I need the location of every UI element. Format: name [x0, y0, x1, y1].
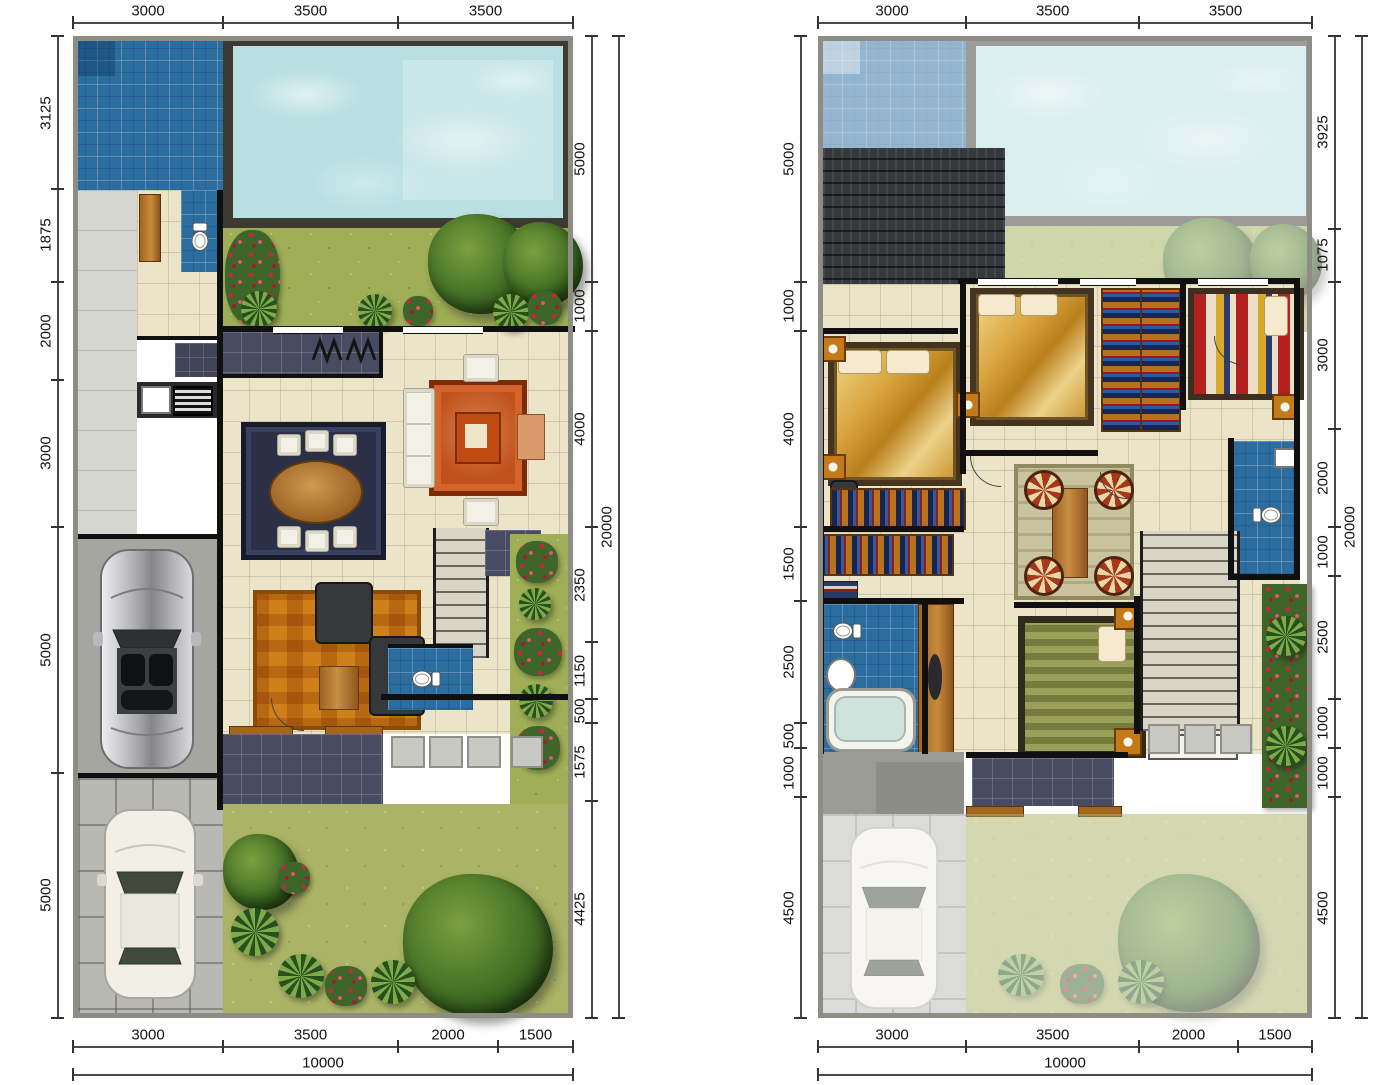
dim-line-ground-floor-plan-bottom-outer — [73, 1074, 573, 1076]
dimension-label: 500 — [782, 723, 797, 748]
dimension-label: 1150 — [573, 654, 588, 686]
dim-tick — [51, 281, 64, 283]
dimension-label: 2000 — [39, 314, 54, 347]
dim-tick — [1237, 1040, 1239, 1053]
dim-tick — [1328, 281, 1341, 283]
dim-tick — [1328, 35, 1341, 37]
dim-tick — [497, 1040, 499, 1053]
dim-tick — [1355, 35, 1368, 37]
dim-tick — [51, 188, 64, 190]
dimension-label: 3000 — [131, 1028, 164, 1043]
dim-tick — [1328, 526, 1341, 528]
dim-tick — [72, 16, 74, 29]
dim-tick — [794, 35, 807, 37]
dimension-label: 3125 — [39, 96, 54, 129]
dim-tick — [51, 35, 64, 37]
dimension-layer: 3000350035003125187520003000500050005000… — [0, 0, 1400, 1085]
dimension-label: 3000 — [875, 4, 908, 19]
dimension-label: 5000 — [39, 633, 54, 666]
dim-tick — [817, 1040, 819, 1053]
dimension-label: 4425 — [573, 893, 588, 926]
dimension-label: 20000 — [1343, 506, 1358, 548]
dim-tick — [817, 16, 819, 29]
dim-tick — [222, 16, 224, 29]
dim-tick — [585, 526, 598, 528]
dimension-label: 3500 — [1036, 4, 1069, 19]
dimension-label: 500 — [573, 699, 588, 724]
dim-tick — [585, 1017, 598, 1019]
dimension-label: 2000 — [431, 1028, 464, 1043]
dimension-label: 4500 — [1316, 891, 1331, 924]
dim-tick — [585, 641, 598, 643]
dim-tick — [1328, 747, 1341, 749]
dim-tick — [222, 1040, 224, 1053]
dim-tick — [397, 1040, 399, 1053]
dimension-label: 1075 — [1316, 238, 1331, 271]
dim-tick — [51, 1017, 64, 1019]
dim-line-upper-floor-plan-top — [818, 22, 1312, 24]
dimension-label: 3000 — [39, 437, 54, 470]
dimension-label: 5000 — [573, 142, 588, 175]
dim-tick — [965, 1040, 967, 1053]
dimension-label: 1500 — [1258, 1028, 1291, 1043]
dimension-label: 2500 — [782, 645, 797, 678]
dim-line-ground-floor-plan-right-outer — [618, 36, 620, 1018]
dimension-label: 3500 — [469, 4, 502, 19]
dimension-label: 3500 — [294, 1028, 327, 1043]
dim-tick — [612, 35, 625, 37]
dimension-label: 4000 — [573, 412, 588, 445]
dimension-label: 20000 — [600, 506, 615, 548]
dim-tick — [51, 772, 64, 774]
dim-tick — [1328, 428, 1341, 430]
dim-tick — [1138, 1040, 1140, 1053]
dimension-label: 1000 — [782, 756, 797, 789]
dim-tick — [794, 600, 807, 602]
dim-tick — [794, 526, 807, 528]
dim-tick — [572, 1040, 574, 1053]
dim-tick — [1328, 796, 1341, 798]
dim-tick — [572, 16, 574, 29]
dimension-label: 1000 — [573, 289, 588, 322]
dimension-label: 3000 — [131, 4, 164, 19]
dim-tick — [51, 379, 64, 381]
dim-line-upper-floor-plan-right-outer — [1361, 36, 1363, 1018]
dimension-label: 1875 — [39, 219, 54, 252]
dimension-label: 10000 — [1044, 1056, 1086, 1071]
dim-tick — [585, 330, 598, 332]
dimension-label: 1500 — [519, 1028, 552, 1043]
dim-tick — [585, 35, 598, 37]
dimension-label: 1500 — [782, 547, 797, 580]
dim-tick — [1311, 1040, 1313, 1053]
dim-tick — [965, 16, 967, 29]
dimension-label: 5000 — [782, 142, 797, 175]
dim-tick — [1328, 698, 1341, 700]
dim-tick — [72, 1068, 74, 1081]
dimension-label: 1000 — [782, 289, 797, 322]
dim-tick — [585, 281, 598, 283]
dimension-label: 1000 — [1316, 707, 1331, 740]
dim-tick — [51, 526, 64, 528]
dim-tick — [1311, 1068, 1313, 1081]
dimension-label: 4500 — [782, 891, 797, 924]
dimension-label: 3500 — [1209, 4, 1242, 19]
dimension-label: 2350 — [573, 568, 588, 601]
dim-line-upper-floor-plan-bottom-outer — [818, 1074, 1312, 1076]
dim-line-ground-floor-plan-top — [73, 22, 573, 24]
dimension-label: 3500 — [294, 4, 327, 19]
dim-tick — [397, 16, 399, 29]
dim-tick — [1328, 1017, 1341, 1019]
dimension-label: 5000 — [39, 879, 54, 912]
dimension-label: 3500 — [1036, 1028, 1069, 1043]
dimension-label: 2500 — [1316, 621, 1331, 654]
dim-tick — [585, 800, 598, 802]
dimension-label: 2000 — [1172, 1028, 1205, 1043]
dim-tick — [612, 1017, 625, 1019]
dim-tick — [794, 281, 807, 283]
floor-plan-sheet: 3000350035003125187520003000500050005000… — [0, 0, 1400, 1085]
dimension-label: 1000 — [1316, 756, 1331, 789]
dim-tick — [1328, 575, 1341, 577]
dim-tick — [1311, 16, 1313, 29]
dim-tick — [1355, 1017, 1368, 1019]
dimension-label: 2000 — [1316, 461, 1331, 494]
dim-tick — [794, 1017, 807, 1019]
dimension-label: 3000 — [875, 1028, 908, 1043]
dim-tick — [572, 1068, 574, 1081]
dimension-label: 1000 — [1316, 535, 1331, 568]
dim-tick — [1328, 228, 1341, 230]
dim-tick — [794, 796, 807, 798]
dimension-label: 4000 — [782, 412, 797, 445]
dim-tick — [72, 1040, 74, 1053]
dim-tick — [794, 330, 807, 332]
dim-tick — [1138, 16, 1140, 29]
dimension-label: 10000 — [302, 1056, 344, 1071]
dimension-label: 1575 — [573, 745, 588, 778]
dim-tick — [817, 1068, 819, 1081]
dimension-label: 3000 — [1316, 338, 1331, 371]
dimension-label: 3925 — [1316, 116, 1331, 149]
